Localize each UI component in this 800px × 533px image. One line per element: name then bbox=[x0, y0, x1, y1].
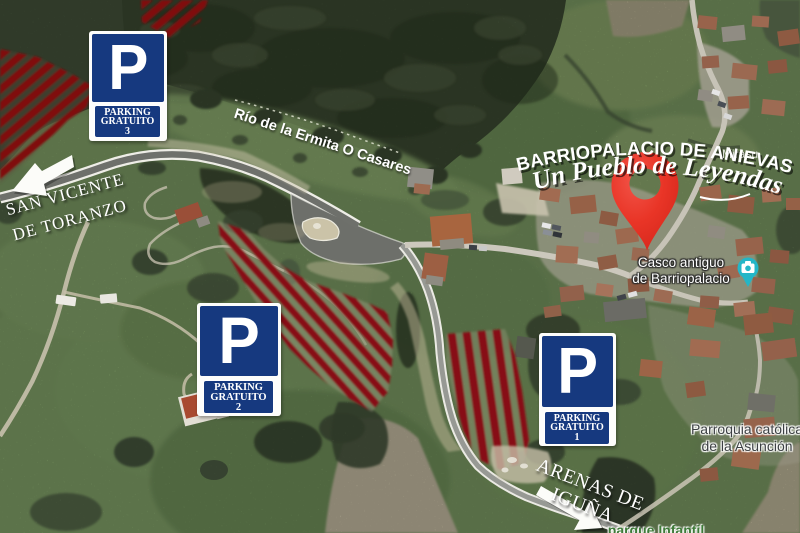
svg-text:Mirasu: Mirasu bbox=[722, 147, 758, 161]
